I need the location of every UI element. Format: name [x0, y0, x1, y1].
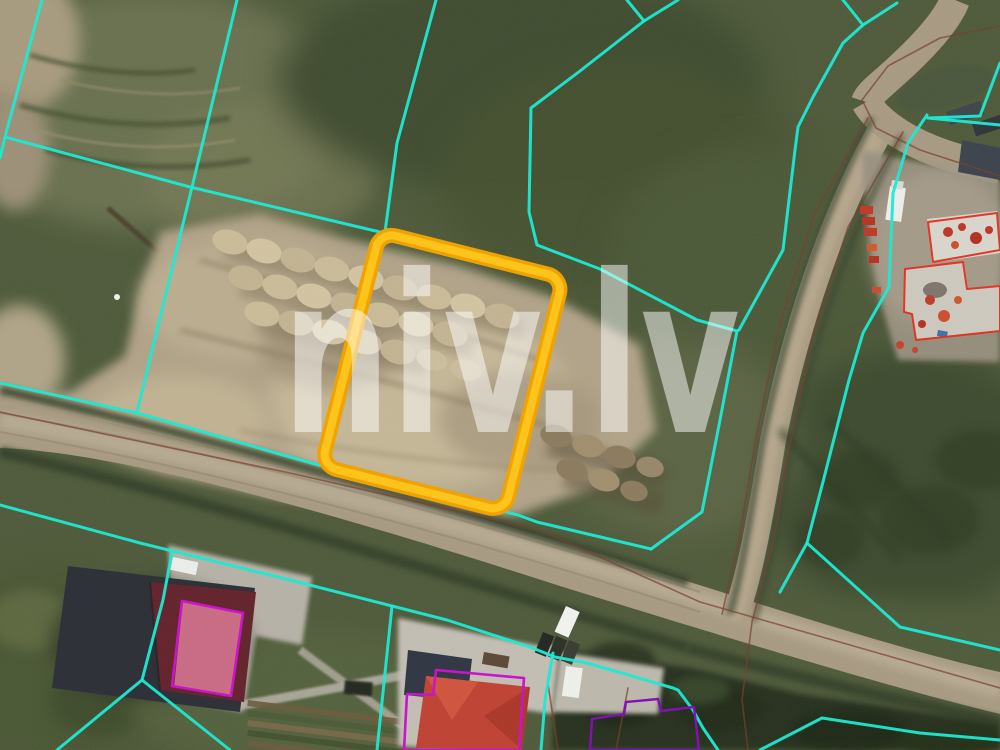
aerial-map-image: niv.lv — [0, 0, 1000, 750]
watermark: niv.lv — [282, 228, 740, 484]
